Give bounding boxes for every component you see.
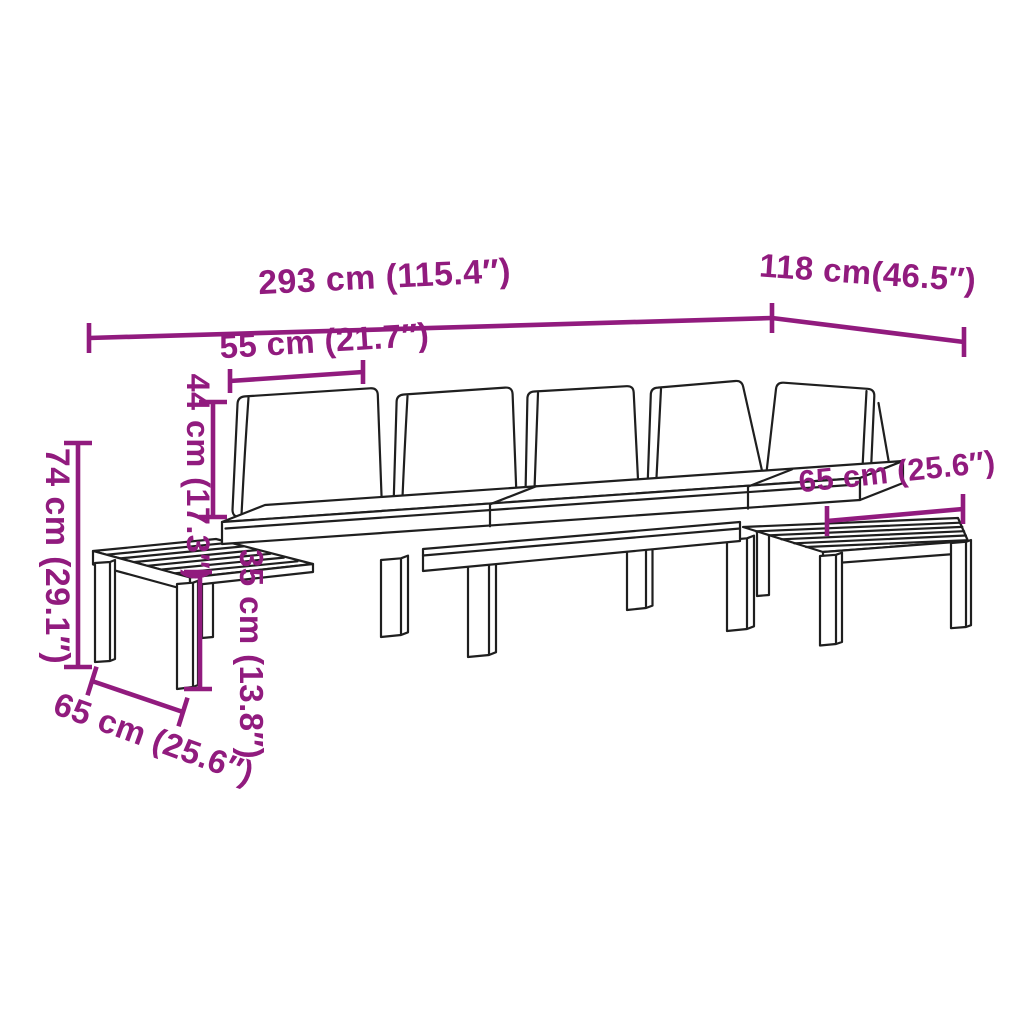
dim-label: 55 cm (21.7″) [218,316,430,366]
dim-label: 118 cm(46.5″) [758,246,977,298]
dim-left-table-depth: 65 cm (25.6″) [49,667,259,792]
dim-line [230,372,363,381]
dim-line [89,318,772,338]
dim-line [772,318,964,342]
bench-frame [423,522,740,571]
dim-label: 44 cm (17.3″) [180,374,216,581]
table-leg [177,581,198,689]
dim-cushion-width: 55 cm (21.7″) [218,316,430,393]
table-leg [95,560,115,662]
dim-overall-height: 74 cm (29.1″) [38,443,92,667]
dim-label: 293 cm (115.4″) [257,252,511,302]
sofa-leg [381,556,408,637]
product-dimension-diagram: 293 cm (115.4″) 118 cm(46.5″) 55 cm (21.… [0,0,1024,1024]
table-leg [757,530,769,596]
frame-front-face [423,522,740,571]
sofa-leg [727,536,754,631]
dim-label: 74 cm (29.1″) [38,448,76,664]
lounge-set-drawing [93,381,971,689]
dim-total-depth: 118 cm(46.5″) [758,246,977,357]
right-coffee-table [743,518,971,646]
table-leg [951,540,971,628]
sofa-leg [468,557,496,657]
table-leg [820,553,842,646]
dim-label: 35 cm (13.8″) [233,549,270,759]
dim-total-width: 293 cm (115.4″) [89,252,772,353]
